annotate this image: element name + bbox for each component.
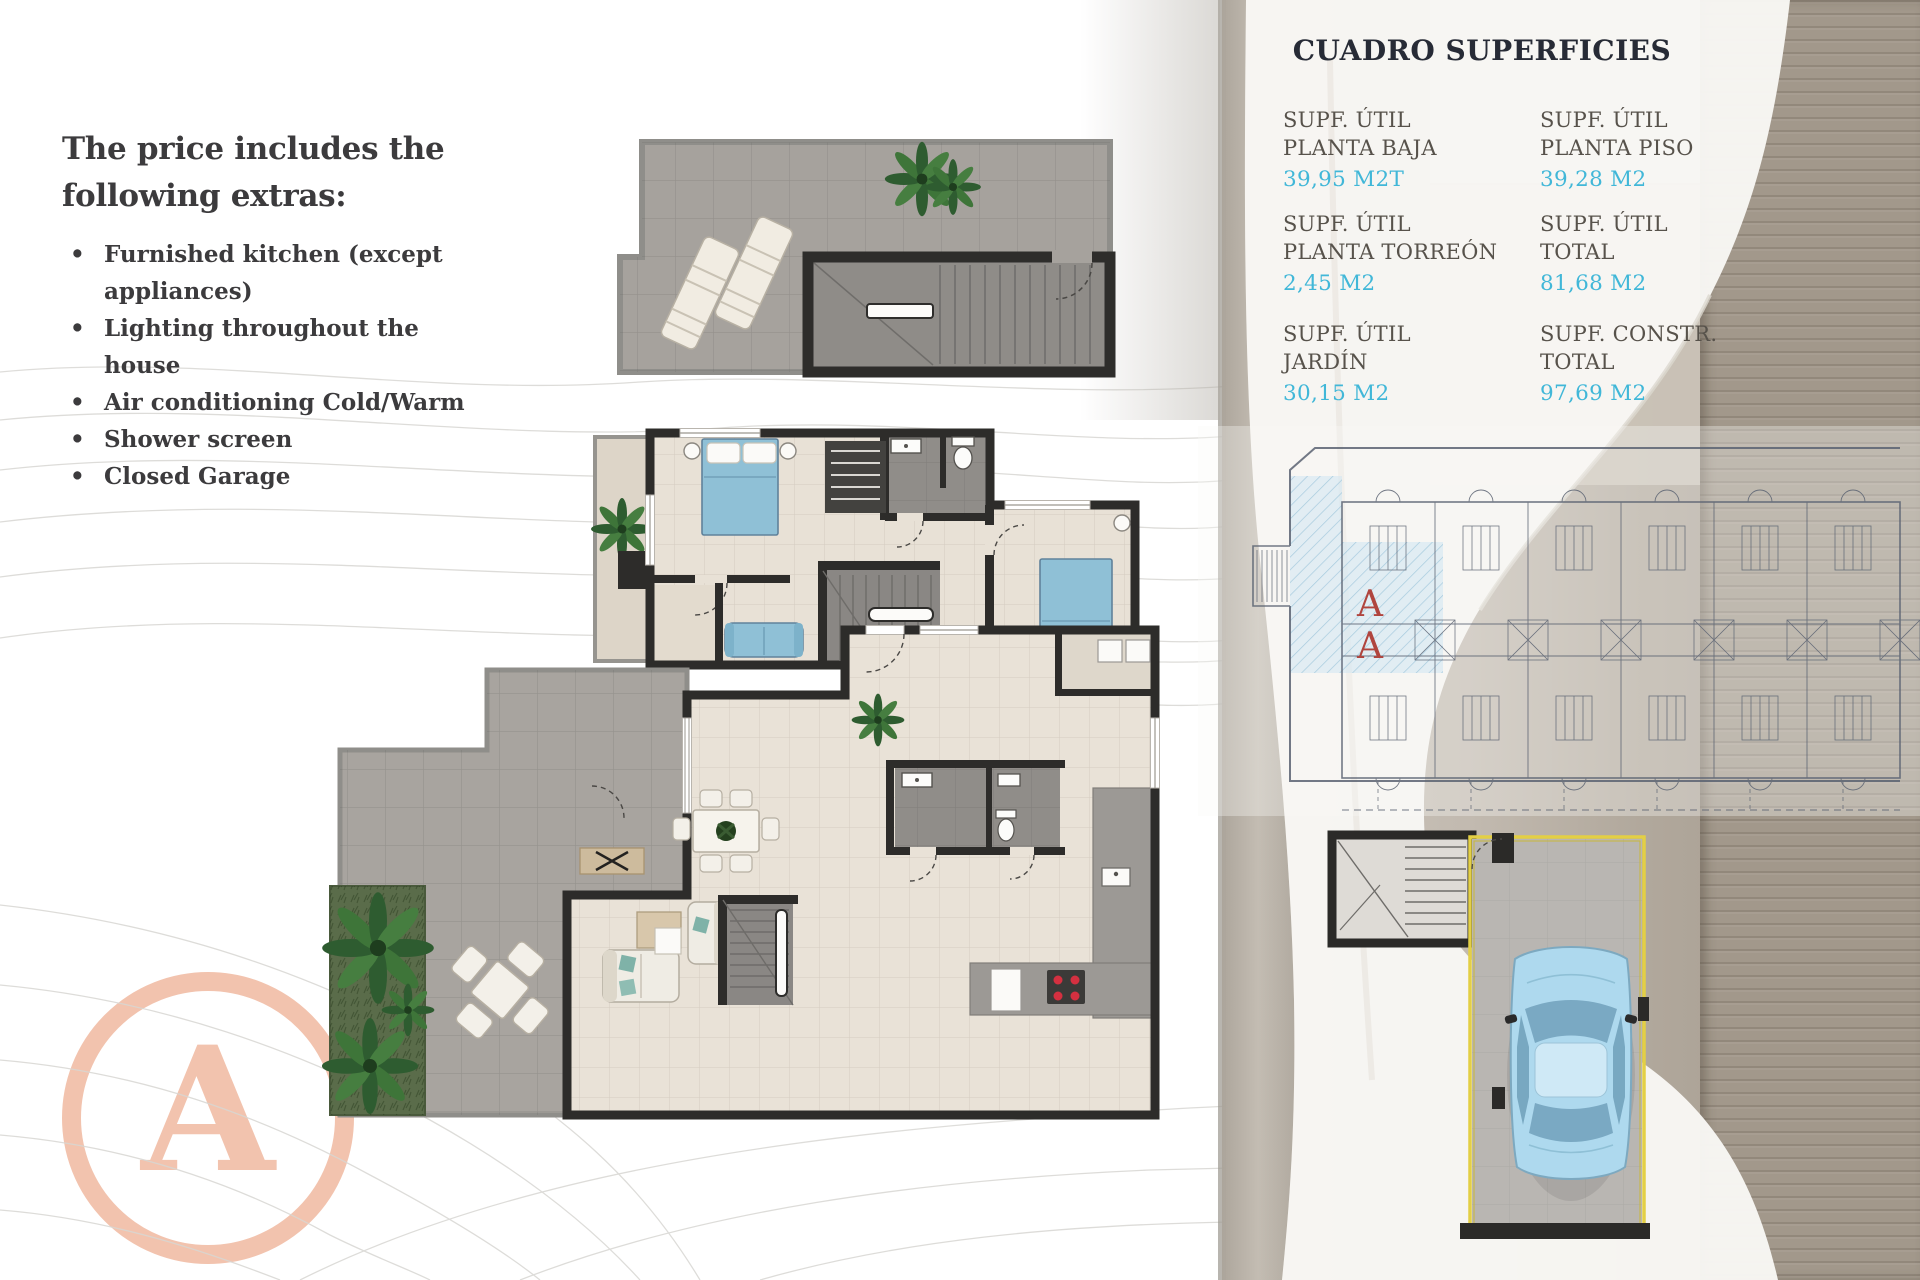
wardrobe — [825, 441, 886, 513]
surface-value: 2,45 M2 — [1283, 270, 1538, 298]
extras-item: Lighting throughout the house — [62, 310, 502, 384]
unit-marker-a-bottom: A — [1356, 626, 1384, 667]
roof-stairwell — [808, 250, 1110, 372]
surface-entry: SUPF. ÚTIL PLANTA BAJA 39,95 M2T — [1283, 106, 1538, 194]
bathroom-sink — [891, 439, 921, 453]
car-top-view — [1504, 947, 1638, 1201]
garage-stairwell — [1332, 835, 1472, 943]
ground-floor-plan — [310, 618, 1170, 1133]
extras-item: Shower screen — [62, 421, 502, 458]
dishwasher — [991, 969, 1021, 1011]
extras-text-block: The price includes the following extras:… — [62, 126, 502, 495]
extras-title-line1: The price includes the — [62, 126, 502, 173]
coffee-table — [637, 912, 681, 954]
toilet — [952, 437, 974, 469]
stair-handrail — [867, 304, 933, 318]
living-sofa — [603, 950, 679, 1002]
surface-entry: SUPF. ÚTIL TOTAL 81,68 M2 — [1540, 210, 1795, 298]
stair-handrail — [776, 910, 787, 996]
cooktop — [1047, 970, 1085, 1004]
indoor-plant — [852, 694, 905, 747]
extras-title-line2: following extras: — [62, 173, 502, 220]
garage-plan — [1320, 825, 1670, 1255]
surface-value: 39,28 M2 — [1540, 166, 1795, 194]
surface-value: 81,68 M2 — [1540, 270, 1795, 298]
extras-item: Closed Garage — [62, 458, 502, 495]
terrace-sideboard — [580, 848, 644, 874]
roof-terrace-floor-plan — [600, 105, 1120, 385]
balcony-plant — [591, 498, 653, 560]
surfaces-table-title: CUADRO SUPERFICIES — [1292, 34, 1672, 67]
site-plan-blueprint: A A — [1048, 366, 1920, 816]
brochure-page: { "left_panel": { "title_line1": "The pr… — [0, 0, 1920, 1280]
garden — [322, 886, 434, 1115]
surface-entry: SUPF. ÚTIL PLANTA PISO 39,28 M2 — [1540, 106, 1795, 194]
surface-value: 39,95 M2T — [1283, 166, 1538, 194]
extras-item: Furnished kitchen (except appliances) — [62, 236, 502, 310]
unit-marker-a-top: A — [1356, 584, 1384, 625]
extras-item: Air conditioning Cold/Warm — [62, 384, 502, 421]
toilet — [996, 810, 1016, 841]
surface-entry: SUPF. ÚTIL PLANTA TORREÓN 2,45 M2 — [1283, 210, 1538, 298]
kitchen-sink — [1102, 868, 1130, 886]
extras-list: Furnished kitchen (except appliances) Li… — [62, 236, 502, 495]
